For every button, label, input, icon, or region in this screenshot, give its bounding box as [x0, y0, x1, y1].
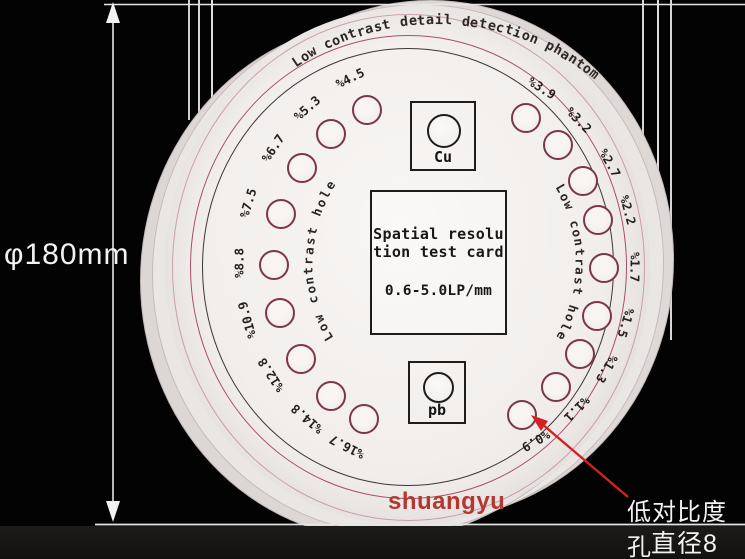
- product-photo: Low contrast detail detection phantom Lo…: [0, 0, 745, 559]
- diameter-dimension-label: φ180mm: [4, 238, 130, 272]
- callout-text-line2: 直径8: [651, 524, 718, 559]
- dimension-lines: [95, 2, 745, 525]
- callout-arrow: [531, 415, 628, 497]
- annotation-overlay: [0, 0, 745, 559]
